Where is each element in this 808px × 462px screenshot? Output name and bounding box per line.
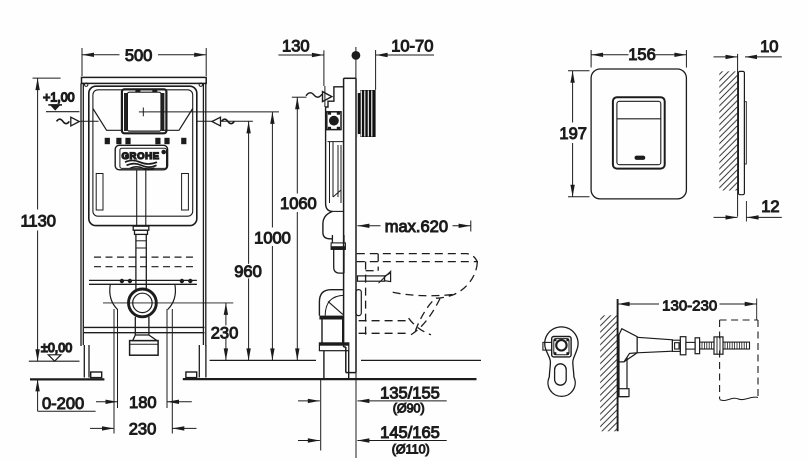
svg-text:135/155: 135/155 [380, 385, 440, 403]
svg-text:230: 230 [211, 324, 239, 342]
svg-text:(Ø90): (Ø90) [393, 401, 425, 415]
svg-text:130: 130 [282, 37, 310, 55]
svg-text:1060: 1060 [280, 195, 317, 213]
svg-text:230: 230 [129, 421, 157, 439]
svg-text:180: 180 [129, 394, 157, 412]
svg-text:145/165: 145/165 [380, 424, 440, 442]
svg-text:130-230: 130-230 [662, 297, 717, 314]
svg-text:197: 197 [559, 125, 587, 143]
svg-text:0-200: 0-200 [42, 395, 84, 413]
svg-text:±0,00: ±0,00 [41, 341, 72, 355]
svg-text:+1,00: +1,00 [43, 91, 75, 105]
svg-text:1130: 1130 [20, 212, 55, 230]
svg-text:GROHE: GROHE [122, 151, 160, 162]
svg-text:500: 500 [125, 47, 153, 65]
svg-text:960: 960 [234, 263, 262, 281]
svg-text:12: 12 [761, 198, 779, 216]
svg-text:10-70: 10-70 [391, 37, 433, 55]
svg-text:1000: 1000 [254, 229, 291, 247]
svg-text:max.620: max.620 [385, 218, 448, 236]
svg-text:156: 156 [628, 46, 656, 64]
svg-text:10: 10 [760, 38, 778, 56]
svg-text:(Ø110): (Ø110) [392, 442, 430, 456]
